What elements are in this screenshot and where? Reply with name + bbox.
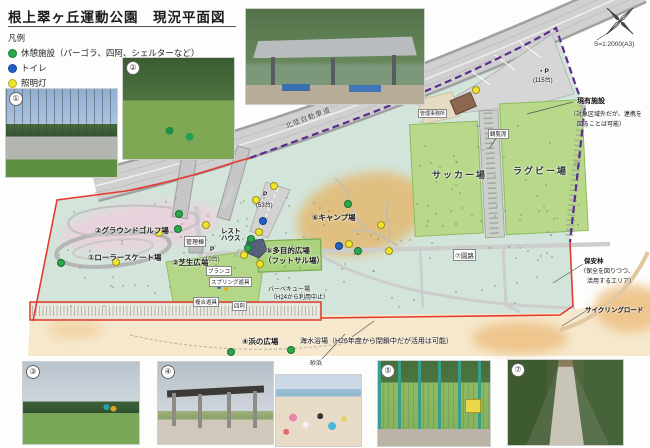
pergola-column (227, 392, 231, 428)
photo4-badge: ④ (161, 365, 175, 379)
label-parking10-count: (10台) (203, 254, 220, 263)
label-bbq-note: （H24から利用中止） (270, 292, 329, 301)
label-futsal: （フットサル場） (264, 255, 324, 266)
rest-facility-marker (57, 259, 65, 267)
light-marker (256, 260, 264, 268)
rest-facility-marker (244, 244, 252, 252)
light-marker (472, 86, 480, 94)
pergola-column (172, 393, 176, 426)
light-marker (255, 228, 263, 236)
label-combo-equipment: 複合遊具 (193, 297, 219, 307)
label-camp: ⑥キャンプ場 (312, 212, 356, 223)
label-swim-beach-note: 海水浴場（H26年度から閉鎖中だが活用は可能） (300, 336, 453, 346)
toilet-icon (8, 64, 17, 73)
light-marker (270, 182, 278, 190)
toilet-marker (335, 242, 343, 250)
label-swing: ブランコ (206, 266, 232, 276)
toilet-marker (259, 217, 267, 225)
light-marker (377, 221, 385, 229)
court-sign (465, 399, 480, 413)
pergola-column (198, 394, 202, 428)
rest-facility-marker (247, 235, 255, 243)
label-roller-rink: ①ローラースケート場 (88, 252, 161, 263)
label-grandstand: 観覧席 (488, 129, 509, 139)
legend: 凡例 休憩施設（パーゴラ、四阿、シェルターなど） トイレ 照明灯 (8, 32, 199, 89)
title-underline (8, 26, 236, 27)
label-parking53: P (263, 191, 267, 198)
photo-beach-pergola: ④ (157, 361, 274, 445)
legend-rest-label: 休憩施設（パーゴラ、四阿、シェルターなど） (21, 47, 199, 59)
label-spring-equipment: スプリング遊具 (209, 277, 252, 287)
photo-pavilion-shelter (245, 8, 425, 105)
pavilion-column (271, 57, 275, 87)
map-scale: S=1:2000(A3) (594, 41, 634, 48)
rest-facility-marker (287, 346, 295, 354)
pavilion-floor (246, 85, 424, 104)
label-parking115: ・P (538, 65, 549, 75)
label-ground-golf: ②グラウンドゴルフ場 (95, 225, 169, 236)
label-park-path: ⑦園路 (453, 249, 476, 261)
rest-facility-marker (354, 247, 362, 255)
park-site-plan: { "title": "根上翠ヶ丘運動公園 現況平面図", "legend": … (0, 0, 650, 448)
pergola-column (253, 391, 257, 428)
light-icon (8, 79, 17, 88)
rest-facility-icon (8, 49, 17, 58)
rest-facility-marker (344, 200, 352, 208)
label-protected-forest: 保安林 (584, 255, 604, 265)
picnic-table (282, 84, 310, 91)
photo-roller-rink: ① (5, 88, 118, 178)
label-existing-note1: （対象区域外だが、連携を (570, 109, 642, 118)
light-marker (240, 251, 248, 259)
label-existing-facility: 現有施設 (577, 96, 605, 106)
legend-heading: 凡例 (8, 32, 199, 44)
label-gazebo: 四阿 (232, 301, 247, 311)
page-title: 根上翠ヶ丘運動公園 現況平面図 (8, 6, 226, 26)
photo5-badge: ⑤ (381, 364, 395, 378)
label-forest-note2: 活用するエリア） (587, 276, 635, 285)
photo3-badge: ③ (26, 365, 40, 379)
photo-beach-yoga (275, 374, 362, 447)
label-soccer-field: サッカー場 (432, 168, 487, 181)
label-parking115-count: (115台) (533, 75, 553, 84)
label-parking10: P (210, 246, 214, 253)
label-mgmt-building: 管理棟 (184, 236, 206, 247)
photo-lawn-plaza: ③ (22, 361, 140, 445)
label-mgmt-office: 管理事務所 (418, 109, 447, 118)
label-rest-house: レストハウス (221, 228, 245, 243)
label-parking53-count: (53台) (256, 200, 273, 209)
pavilion-column (392, 55, 396, 87)
photo-tree-path: ⑦ (507, 359, 624, 446)
rest-facility-marker (227, 348, 235, 356)
label-cycling-road: サイクリングロード (585, 304, 643, 314)
photo-fenced-court: ⑤ (377, 360, 491, 447)
light-marker (202, 221, 210, 229)
photo7-badge: ⑦ (511, 363, 525, 377)
legend-toilet-label: トイレ (21, 62, 47, 74)
light-marker (345, 240, 353, 248)
picnic-table (349, 85, 381, 92)
label-sand: 砂浜 (310, 358, 322, 367)
light-marker (385, 247, 393, 255)
legend-light-label: 照明灯 (21, 77, 47, 89)
photo1-badge: ① (9, 92, 23, 106)
pergola-beam (167, 386, 264, 398)
label-forest-note1: （保全を図りつつ、 (580, 266, 634, 275)
rest-facility-marker (174, 225, 182, 233)
label-beach-plaza: ④浜の広場 (242, 336, 278, 347)
label-existing-note2: 図ることは可能） (577, 119, 625, 128)
label-rugby-field: ラグビー場 (513, 164, 568, 177)
rest-facility-marker (175, 210, 183, 218)
